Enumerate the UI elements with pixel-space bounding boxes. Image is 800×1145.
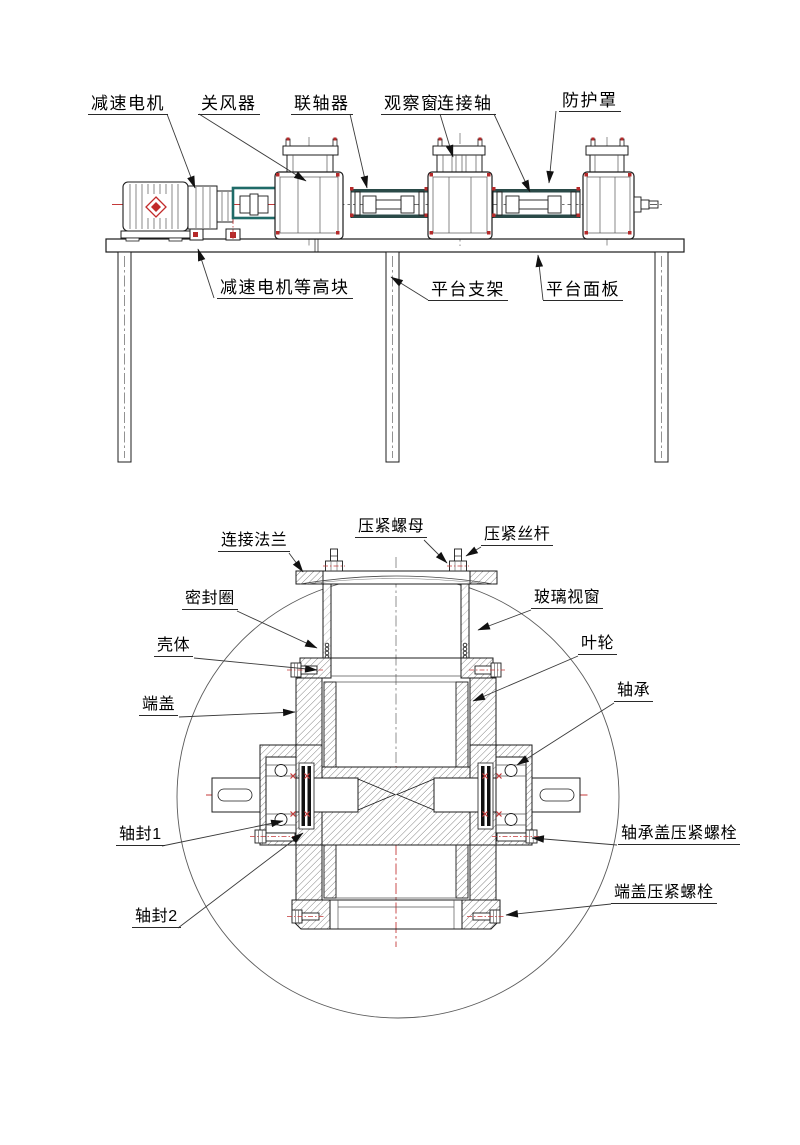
leader-glass-window [478, 610, 531, 630]
label-bearing-cover-bolt: 轴承盖压紧螺栓 [618, 826, 740, 845]
technical-drawing-canvas [0, 0, 800, 1145]
shaft-guard-2 [492, 187, 580, 218]
compression-screw-right [447, 549, 469, 571]
label-seal-ring: 密封圈 [182, 591, 238, 610]
label-shaft-seal-1: 轴封1 [116, 827, 165, 846]
leader-end-cover [179, 712, 295, 717]
compression-screw-left [323, 549, 345, 571]
label-glass-window: 玻璃视窗 [531, 590, 603, 609]
leader-bearing-cover-bolt [532, 838, 617, 845]
label-rotary-valve: 关风器 [198, 95, 260, 115]
rotary-valve-3 [583, 137, 658, 246]
leader-compression-nut [424, 540, 447, 563]
platform-panel [106, 239, 684, 252]
leader-protective-cover [549, 111, 556, 183]
label-riser-block: 减速电机等高块 [217, 279, 353, 299]
label-compression-screw: 压紧丝杆 [481, 527, 553, 546]
leader-compression-screw [466, 547, 481, 556]
leader-riser-block [198, 249, 214, 298]
rotary-valve-1 [275, 137, 343, 246]
label-connecting-shaft: 连接轴 [434, 95, 496, 115]
leader-shaft-seal-2 [178, 833, 303, 928]
bearing-right [496, 757, 526, 833]
label-shaft-seal-2: 轴封2 [132, 909, 181, 928]
label-connecting-flange: 连接法兰 [218, 533, 290, 552]
leader-connecting-shaft [494, 114, 530, 192]
leader-bearing [517, 703, 614, 765]
output-shaft [634, 197, 658, 212]
keyway-right [540, 789, 574, 801]
label-impeller: 叶轮 [578, 636, 617, 655]
drawing-sheet: 减速电机 关风器 联轴器 观察窗 连接轴 防护罩 减速电机等高块 平台支架 平台… [0, 0, 800, 1145]
label-housing: 壳体 [154, 638, 193, 657]
motor-base [121, 231, 190, 238]
keyway-left [218, 789, 252, 801]
label-coupling: 联轴器 [291, 95, 353, 115]
label-gear-motor: 减速电机 [88, 95, 168, 115]
label-end-cover: 端盖 [139, 697, 178, 716]
leader-seal-ring [237, 611, 317, 648]
label-compression-nut: 压紧螺母 [355, 519, 427, 538]
leader-coupling [350, 114, 367, 188]
shaft-guard-1 [350, 187, 428, 218]
gear-motor [121, 182, 190, 241]
connecting-flange [296, 571, 497, 584]
label-protective-cover: 防护罩 [559, 92, 621, 112]
label-end-cover-bolt: 端盖压紧螺栓 [611, 885, 717, 904]
label-platform-panel: 平台面板 [543, 281, 623, 301]
leader-end-cover-bolt [506, 904, 611, 915]
rotary-valve-2 [428, 133, 492, 246]
section-view [177, 549, 619, 1018]
label-platform-support: 平台支架 [428, 281, 508, 301]
motor-coupling [233, 188, 277, 218]
leader-gear-motor [167, 114, 195, 188]
leader-connecting-flange [289, 553, 303, 572]
platform [106, 239, 684, 462]
label-bearing: 轴承 [614, 683, 653, 702]
